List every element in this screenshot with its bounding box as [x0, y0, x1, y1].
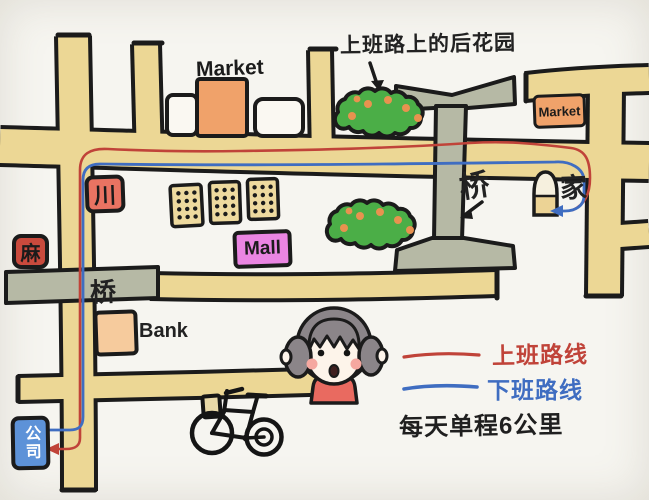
white-building-right — [255, 99, 303, 136]
girl-cheek-right — [351, 359, 362, 370]
market-top-label: Market — [196, 56, 264, 82]
girl-mouth — [330, 365, 339, 377]
garden-bush — [327, 200, 415, 248]
white-building-left — [167, 95, 197, 135]
bridge-left-label: 桥 — [89, 272, 116, 310]
sichuan-restaurant-sign: 川 — [84, 174, 125, 213]
garden-annotation: 上班路上的后花园 — [340, 26, 516, 59]
company-label: 公司 — [18, 425, 43, 461]
legend-to-work-label: 上班路线 — [492, 335, 589, 371]
bank-label: Bank — [139, 320, 188, 343]
distance-annotation: 每天单程6公里 — [399, 405, 564, 443]
market-right-sign: Market — [532, 93, 586, 129]
girl-eye-left — [318, 350, 325, 357]
home-label: 家 — [559, 166, 587, 206]
girl-eye-right — [344, 350, 351, 357]
girl-ear-right — [377, 349, 387, 363]
bank-building — [95, 311, 136, 354]
hand-drawn-commute-map: 上班路上的后花园 Market Market Mall 川 麻 公司 Bank … — [0, 0, 649, 500]
bridge-right-label: 桥 — [456, 159, 492, 207]
legend-off-work-label: 下班路线 — [487, 371, 583, 405]
girl-ear-left — [281, 350, 291, 364]
market-building — [197, 79, 247, 136]
mall-sign: Mall — [232, 229, 292, 269]
company-sign: 公司 — [11, 416, 51, 471]
ma-restaurant-sign: 麻 — [12, 234, 49, 269]
girl-cheek-left — [307, 359, 318, 370]
legend-to-work-swatch — [404, 354, 479, 357]
home-building — [534, 172, 557, 215]
legend-off-work-swatch — [404, 386, 477, 389]
garden-bush — [335, 88, 423, 136]
